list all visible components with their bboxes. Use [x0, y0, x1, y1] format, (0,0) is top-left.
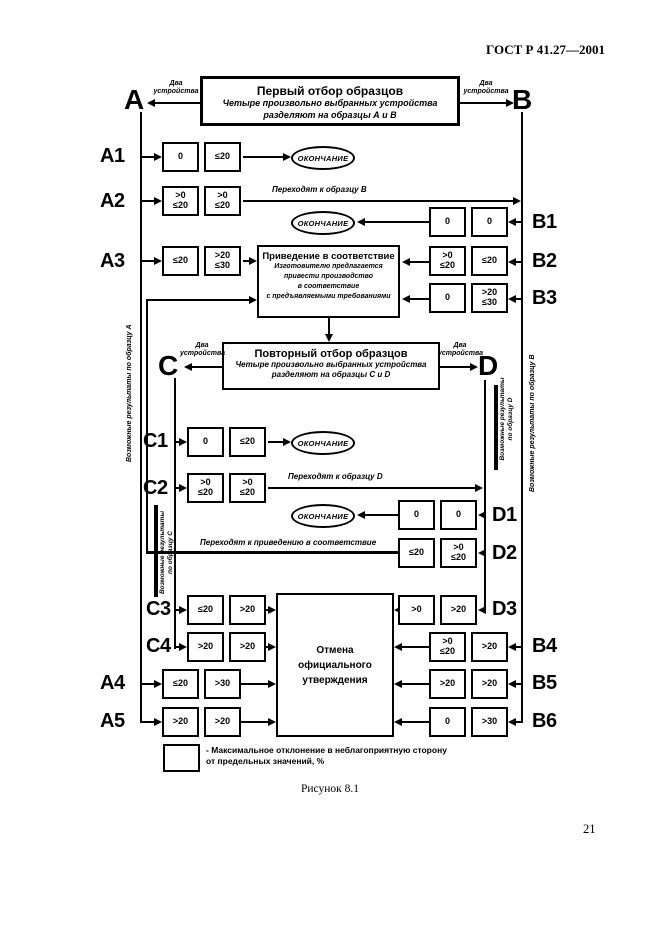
- flow-line: [328, 316, 330, 334]
- revocation-box: Отмена официального утверждения: [276, 593, 394, 737]
- resampling-title: Повторный отбор образцов: [224, 344, 438, 360]
- flow-line: [409, 261, 429, 263]
- row-d2-value-1: ≤20: [398, 538, 435, 568]
- row-b6-value-1: 0: [429, 707, 466, 737]
- resampling-sub1: Четыре произвольно выбранных устройства: [224, 360, 438, 370]
- bracket-d: [494, 385, 498, 470]
- two-devices-line2: устройства: [152, 88, 200, 96]
- row-d1-value-1: 0: [398, 500, 435, 530]
- row-c1-value-2: ≤20: [229, 427, 266, 457]
- flow-line: [402, 646, 429, 648]
- alignment-title: Приведение в соответствие: [259, 247, 398, 262]
- flow-line: [515, 721, 522, 723]
- flow-line: [243, 200, 513, 202]
- row-d3-value-1: >0: [398, 595, 435, 625]
- arrowhead: [268, 718, 276, 726]
- flow-line: [268, 441, 283, 443]
- flow-label-to-sample-b: Переходят к образцу В: [272, 185, 367, 194]
- two-devices-note-d: Два устройства: [438, 342, 482, 358]
- arrowhead: [179, 606, 187, 614]
- termination-b1: ОКОНЧАНИЕ: [291, 211, 355, 235]
- legend-line2: от предельных значений, %: [206, 756, 506, 767]
- arrowhead: [154, 257, 162, 265]
- row-a2-value-2: >0 ≤20: [204, 186, 241, 216]
- flow-line: [409, 298, 429, 300]
- revocation-line1: Отмена: [316, 643, 353, 658]
- flow-line: [515, 261, 522, 263]
- two-devices-line1: Два: [438, 342, 482, 350]
- row-a4-value-2: >30: [204, 669, 241, 699]
- arrowhead-to-alignment: [249, 296, 257, 304]
- row-d3-label: D3: [492, 598, 517, 621]
- row-b5-value-2: >20: [471, 669, 508, 699]
- d-line: [484, 380, 486, 612]
- row-a4-value-1: ≤20: [162, 669, 199, 699]
- arrowhead: [283, 153, 291, 161]
- row-a5-label: А5: [100, 710, 125, 733]
- figure-caption: Рисунок 8.1: [240, 783, 420, 795]
- row-a3-value-1: ≤20: [162, 246, 199, 276]
- arrowhead: [154, 718, 162, 726]
- revocation-line3: утверждения: [302, 673, 367, 688]
- side-label-d-line1: Возможные результаты: [499, 374, 507, 464]
- a-line: [140, 112, 142, 723]
- row-b6-label: В6: [532, 710, 557, 733]
- arrowhead: [154, 680, 162, 688]
- arrowhead: [394, 680, 402, 688]
- flow-line: [402, 721, 429, 723]
- row-a1-value-1: 0: [162, 142, 199, 172]
- arrowhead: [268, 643, 276, 651]
- row-c3-label: C3: [146, 598, 171, 621]
- return-line: [146, 299, 148, 554]
- row-b2-label: В2: [532, 250, 557, 273]
- alignment-box: Приведение в соответствие Изготовителю п…: [257, 245, 400, 318]
- row-d2-label: D2: [492, 542, 517, 565]
- row-b4-label: В4: [532, 635, 557, 658]
- row-a3-label: А3: [100, 250, 125, 273]
- resampling-box: Повторный отбор образцов Четыре произвол…: [222, 342, 440, 390]
- flow-line: [241, 721, 268, 723]
- flow-line: [241, 683, 268, 685]
- row-a4-label: А4: [100, 672, 125, 695]
- row-c4-value-2: >20: [229, 632, 266, 662]
- row-c3-value-1: ≤20: [187, 595, 224, 625]
- row-a2-value-1: >0 ≤20: [162, 186, 199, 216]
- row-a1-label: А1: [100, 145, 125, 168]
- flow-line: [364, 514, 398, 516]
- first-selection-sub2: разделяют на образцы А и В: [203, 110, 457, 122]
- row-b1-value-1: 0: [429, 207, 466, 237]
- first-selection-box: Первый отбор образцов Четыре произвольно…: [200, 76, 460, 126]
- flow-line: [191, 366, 222, 368]
- row-b5-label: В5: [532, 672, 557, 695]
- two-devices-line1: Два: [152, 80, 200, 88]
- row-b2-value-1: >0 ≤20: [429, 246, 466, 276]
- row-d2-value-2: >0 ≤20: [440, 538, 477, 568]
- row-c2-value-2: >0 ≤20: [229, 473, 266, 503]
- return-line: [146, 299, 249, 301]
- row-c2-value-1: >0 ≤20: [187, 473, 224, 503]
- arrowhead-to-b-line: [513, 197, 521, 205]
- side-label-d-line2: по образцу D: [507, 374, 515, 464]
- row-b3-label: В3: [532, 287, 557, 310]
- arrowhead: [154, 197, 162, 205]
- row-b4-value-1: >0 ≤20: [429, 632, 466, 662]
- flow-line: [142, 200, 154, 202]
- flow-label-to-sample-d: Переходят к образцу D: [288, 472, 383, 481]
- return-line: [146, 551, 398, 554]
- flow-line: [515, 298, 522, 300]
- row-b3-value-2: >20 ≤30: [471, 283, 508, 313]
- arrowhead: [179, 484, 187, 492]
- row-b1-label: В1: [532, 211, 557, 234]
- row-d1-value-2: 0: [440, 500, 477, 530]
- arrowhead-down: [325, 334, 333, 342]
- row-c3-value-2: >20: [229, 595, 266, 625]
- alignment-sub2: привести производство: [259, 272, 398, 282]
- two-devices-line1: Два: [462, 80, 510, 88]
- flow-line: [154, 102, 200, 104]
- first-selection-title: Первый отбор образцов: [203, 79, 457, 98]
- flow-line: [243, 156, 283, 158]
- alignment-sub3: в соответствие: [259, 282, 398, 292]
- flow-line: [364, 221, 429, 223]
- row-a1-value-2: ≤20: [204, 142, 241, 172]
- flow-line: [142, 721, 154, 723]
- two-devices-line2: устройства: [462, 88, 510, 96]
- row-b5-value-1: >20: [429, 669, 466, 699]
- termination-d1: ОКОНЧАНИЕ: [291, 504, 355, 528]
- arrowhead: [478, 511, 486, 519]
- arrowhead-to-c: [184, 363, 192, 371]
- arrowhead: [154, 153, 162, 161]
- row-c1-value-1: 0: [187, 427, 224, 457]
- row-b2-value-2: ≤20: [471, 246, 508, 276]
- side-label-a: Возможные результаты по образцу А: [126, 290, 134, 462]
- arrowhead: [249, 257, 257, 265]
- flow-line: [402, 683, 429, 685]
- arrowhead: [268, 680, 276, 688]
- row-c4-label: C4: [146, 635, 171, 658]
- b-line: [521, 112, 523, 723]
- resampling-sub2: разделяют на образцы C и D: [224, 370, 438, 380]
- arrowhead: [268, 606, 276, 614]
- legend-text: - Максимальное отклонение в неблагоприят…: [206, 745, 506, 768]
- first-selection-sub1: Четыре произвольно выбранных устройства: [203, 98, 457, 110]
- alignment-sub4: с предъявляемыми требованиями: [259, 292, 398, 302]
- flow-line: [438, 366, 470, 368]
- arrowhead-to-a: [147, 99, 155, 107]
- standard-number: ГОСТ Р 41.27—2001: [430, 42, 605, 58]
- row-a5-value-1: >20: [162, 707, 199, 737]
- termination-a1: ОКОНЧАНИЕ: [291, 146, 355, 170]
- legend-line1: - Максимальное отклонение в неблагоприят…: [206, 745, 506, 756]
- arrowhead: [394, 718, 402, 726]
- branch-d-label: D: [478, 350, 498, 382]
- row-a2-label: А2: [100, 190, 125, 213]
- flow-line: [142, 156, 154, 158]
- revocation-line2: официального: [298, 658, 372, 673]
- flow-line: [142, 683, 154, 685]
- arrowhead: [478, 606, 486, 614]
- legend-box: [163, 744, 200, 772]
- row-b4-value-2: >20: [471, 632, 508, 662]
- flow-line: [515, 646, 522, 648]
- arrowhead: [179, 643, 187, 651]
- row-b3-value-1: 0: [429, 283, 466, 313]
- alignment-sub1: Изготовителю предлагается: [259, 262, 398, 272]
- flow-line: [515, 683, 522, 685]
- arrowhead: [394, 643, 402, 651]
- arrowhead-to-d-line: [475, 484, 483, 492]
- side-label-b: Возможные результаты по образцу В: [529, 320, 537, 492]
- two-devices-note-a: Два устройства: [152, 80, 200, 96]
- two-devices-line2: устройства: [180, 350, 224, 358]
- row-a3-value-2: >20 ≤30: [204, 246, 241, 276]
- flow-line: [460, 102, 506, 104]
- document-page: ГОСТ Р 41.27—2001 21 Первый отбор образц…: [0, 0, 661, 936]
- page-number: 21: [583, 822, 596, 837]
- row-b6-value-2: >30: [471, 707, 508, 737]
- arrowhead: [478, 549, 486, 557]
- arrowhead: [179, 438, 187, 446]
- two-devices-note-c: Два устройства: [180, 342, 224, 358]
- two-devices-note-b: Два устройства: [462, 80, 510, 96]
- row-d3-value-2: >20: [440, 595, 477, 625]
- two-devices-line1: Два: [180, 342, 224, 350]
- row-b1-value-2: 0: [471, 207, 508, 237]
- flow-line: [515, 221, 522, 223]
- flow-line: [268, 487, 475, 489]
- side-label-d: Возможные результаты по образцу D: [499, 374, 515, 464]
- two-devices-line2: устройства: [438, 350, 482, 358]
- flow-label-to-alignment: Переходят к приведению в соответствие: [200, 538, 376, 547]
- row-d1-label: D1: [492, 504, 517, 527]
- arrowhead-to-d: [470, 363, 478, 371]
- arrowhead: [283, 438, 291, 446]
- termination-c1: ОКОНЧАНИЕ: [291, 431, 355, 455]
- flow-line: [142, 260, 154, 262]
- row-a5-value-2: >20: [204, 707, 241, 737]
- row-c4-value-1: >20: [187, 632, 224, 662]
